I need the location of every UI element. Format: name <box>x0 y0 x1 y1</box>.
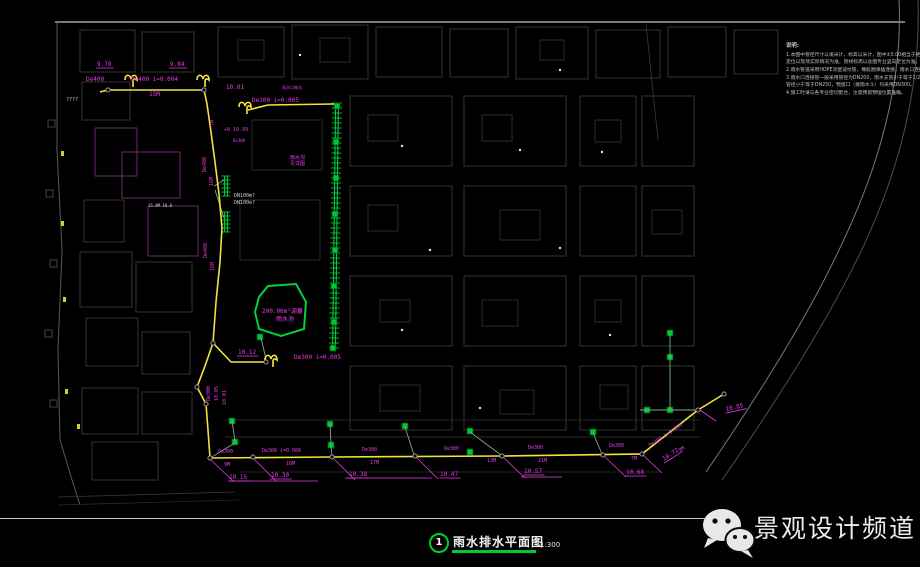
cad-label: 10.47 <box>439 471 461 478</box>
cad-label-text: De300 <box>444 446 459 452</box>
cad-label-layer: 9.789.84De400De400 i=0.00415M????10.01雨水… <box>66 61 747 481</box>
cad-label-text: 10.68 <box>626 469 644 476</box>
manhole-node <box>211 341 215 345</box>
cad-label: 16M <box>286 461 295 467</box>
manhole-node <box>195 385 199 389</box>
dimension-leader <box>416 457 438 479</box>
cad-label-text: 9M <box>224 462 230 468</box>
cad-label-text: 10.01 <box>222 390 228 405</box>
boundary-marker <box>50 260 57 267</box>
rain-inlet <box>330 345 336 351</box>
manhole-node-layer <box>106 88 726 460</box>
cad-label-text: 10.47 <box>440 471 458 478</box>
dimension-leader <box>604 456 626 477</box>
cad-label: De300 <box>218 449 233 455</box>
drawing-title: 雨水排水平面图 <box>453 533 544 550</box>
cad-label-text: 9.84 <box>170 61 185 68</box>
cad-label: ???? <box>66 97 78 103</box>
cad-label: 13M <box>487 458 496 464</box>
cad-label: De400 <box>202 157 208 172</box>
cad-label: De300 i=0.005 <box>252 97 299 104</box>
cad-label-text: ???? <box>66 97 78 103</box>
cad-label-text: De300 i=0.005 <box>252 97 299 104</box>
curb-mark <box>61 221 64 226</box>
cad-label: 雨水池 <box>276 315 294 323</box>
cad-label: 9.84 <box>169 61 187 68</box>
cad-label-text: 10.30 <box>271 472 289 479</box>
cad-label: De300 <box>233 138 246 143</box>
cad-label: 雨水口做法 <box>282 84 302 90</box>
boundary-marker <box>50 400 57 407</box>
cad-label-text: 13M <box>487 458 496 464</box>
cad-label: +8 19.99 <box>224 127 248 133</box>
cad-label: 16M <box>210 262 216 271</box>
dimension-leader <box>700 410 716 421</box>
rain-inlet <box>333 139 339 145</box>
cad-label-text: 15M <box>149 91 160 98</box>
storm-pipe <box>248 104 334 110</box>
cad-label-text: De400 i=0.004 <box>131 76 178 83</box>
cad-label: 7M <box>631 456 637 462</box>
road-line <box>58 492 235 497</box>
manhole-node <box>106 88 110 92</box>
storm-pipe <box>197 343 213 387</box>
road-line <box>58 500 240 505</box>
storm-pipe <box>204 90 222 343</box>
storm-pipe <box>210 454 642 458</box>
drawing-scale: 1:300 <box>540 541 560 549</box>
cad-label: 21M <box>538 458 547 464</box>
manhole-node <box>722 392 726 396</box>
notes-line: 管径小于等于DN250，预留口（接雨水斗）均采用DN300。 <box>786 82 914 90</box>
cad-label-text: 17M <box>370 460 379 466</box>
inlet-connector <box>470 432 501 455</box>
cad-label: De300 i=0.005 <box>648 422 684 448</box>
cad-label: 9M <box>224 462 230 468</box>
cad-label-text: De300 <box>528 445 543 451</box>
rain-drain-symbol <box>197 75 209 87</box>
rain-inlet <box>257 334 263 340</box>
wechat-icon <box>700 505 758 561</box>
cad-label-text: 雨水口做法 <box>282 84 302 90</box>
cad-label: 10.01 <box>222 390 228 405</box>
cad-label-text: 16M <box>209 177 215 186</box>
cad-label-text: 10.12 <box>238 349 256 356</box>
cad-label: 17M <box>370 460 379 466</box>
cad-label: 15.8M 18.0 <box>148 203 173 208</box>
dimension-leader <box>503 457 525 478</box>
cad-label-text: De300 <box>609 443 624 449</box>
rain-inlet <box>332 247 338 253</box>
cad-label: 10.01 <box>226 84 244 91</box>
cad-label-text: De400 <box>86 76 104 83</box>
inlet-connector <box>405 427 414 455</box>
rain-inlet <box>333 175 339 181</box>
cad-label: 10.30 <box>270 472 292 479</box>
cad-label: 9.78 <box>96 61 114 68</box>
cad-label-text: De300 <box>218 449 233 455</box>
manhole-node <box>204 402 208 406</box>
cad-label-text: 10.38 <box>349 471 367 478</box>
cad-label: 7M <box>210 120 216 126</box>
manhole-node <box>601 453 605 457</box>
cad-label-text: De400 <box>202 157 208 172</box>
cad-label-text: 16M <box>286 461 295 467</box>
notes-line: 1.本图中管径尺寸以毫米计，标高以米计，图中±0.00相当于绝对标高详见一览表，… <box>786 52 914 60</box>
cad-label: De300 <box>609 443 624 449</box>
cad-label-text: DN100e? <box>234 200 255 206</box>
cad-label: 10.68 <box>625 469 647 476</box>
notes-line: 2.雨水管道采用HDPE双壁波纹管，橡胶圈承插连接，雨水口连接管坡度不小于1%。 <box>786 67 914 75</box>
building-magenta <box>148 206 198 256</box>
cad-label: 10.38 <box>348 471 370 478</box>
manhole-node <box>330 455 334 459</box>
rain-inlet <box>467 449 473 455</box>
cad-label: De300 <box>206 386 212 401</box>
cad-label: 见详图 <box>290 160 305 167</box>
cad-label-text: +8 19.99 <box>224 127 248 133</box>
cad-label-text: De300 <box>233 138 246 143</box>
manhole-node <box>640 452 644 456</box>
notes-lines: 1.本图中管径尺寸以毫米计，标高以米计，图中±0.00相当于绝对标高详见一览表，… <box>786 52 914 98</box>
cad-label-text: 10.05 <box>214 386 220 401</box>
cad-label-text: De400 <box>203 243 209 258</box>
building-dots <box>299 54 611 409</box>
cad-label: 10.05 <box>214 386 220 401</box>
cad-label: 10.57 <box>523 468 545 475</box>
cad-label: De400 <box>86 76 104 83</box>
cad-label: 200.00m³调蓄 <box>262 307 303 315</box>
cad-label: De400 i=0.004 <box>131 76 178 83</box>
cad-label-text: 雨水池 <box>276 315 294 323</box>
cad-label-text: De300 i=0.006 <box>262 448 301 454</box>
manhole-node <box>696 408 700 412</box>
cad-label-text: 10.01 <box>226 84 244 91</box>
manhole-node <box>500 454 504 458</box>
boundary-marker <box>46 190 53 197</box>
cad-label: De300 i=0.006 <box>262 448 301 454</box>
boundary-marker <box>48 120 55 127</box>
manhole-node <box>413 454 417 458</box>
rain-inlet <box>332 211 338 217</box>
cad-label: De300 <box>444 446 459 452</box>
cad-label: De300 <box>362 447 377 453</box>
rain-inlet <box>331 283 337 289</box>
cad-label-text: De300 i=0.005 <box>294 354 341 361</box>
cad-label: 雨水沟 <box>290 154 305 161</box>
cad-label-text: De300 <box>362 447 377 453</box>
cad-label: De300 i=0.005 <box>294 354 341 361</box>
cad-label: 15M <box>149 91 160 98</box>
cad-label: De400 <box>203 243 209 258</box>
cad-label-text: 雨水沟 <box>290 154 305 161</box>
cad-label-text: De300 i=0.005 <box>648 422 684 448</box>
cad-label: 10.15 <box>228 474 250 481</box>
curb-mark <box>63 297 66 302</box>
dimension-leader <box>643 455 662 473</box>
cad-label: De300 <box>528 445 543 451</box>
cad-label: 10.85 <box>724 402 747 413</box>
cad-label: DN100e? <box>234 200 255 206</box>
curb-mark <box>77 424 80 429</box>
building-magenta <box>122 152 180 198</box>
manhole-node <box>251 455 255 459</box>
cad-label-text: 15.8M 18.0 <box>148 203 173 208</box>
curb-mark <box>65 389 68 394</box>
curb-mark <box>61 151 64 156</box>
cad-label-text: De300 <box>206 386 212 401</box>
cad-label: 16M <box>209 177 215 186</box>
cad-label-text: 10.57 <box>524 468 542 475</box>
cad-screenshot-root: 9.789.84De400De400 i=0.00415M????10.01雨水… <box>0 0 920 567</box>
notes-line: 3.雨水口连接管一般采用管径为DN200，雨水支管小于等于1/2， <box>786 75 914 83</box>
cad-label-text: 21M <box>538 458 547 464</box>
cad-label-text: 7M <box>210 120 216 126</box>
west-boundary-line <box>57 22 80 505</box>
cad-label-text: 16M <box>210 262 216 271</box>
inlet-connector <box>593 433 602 454</box>
manhole-node <box>202 88 206 92</box>
boundary-marker <box>45 330 52 337</box>
cad-label-text: 10.15 <box>229 474 247 481</box>
drawing-title-underline <box>452 550 536 553</box>
storm-pipe-layer <box>100 90 724 458</box>
notes-block: 说明: 1.本图中管径尺寸以毫米计，标高以米计，图中±0.00相当于绝对标高详见… <box>786 42 914 98</box>
manhole-node <box>264 360 268 364</box>
notes-line: 4.施工时请与各专业密切配合，注意预留预埋位置准确。 <box>786 90 914 98</box>
cad-label-text: 见详图 <box>290 160 305 167</box>
rain-drain-symbol <box>239 102 251 114</box>
cad-label-text: 200.00m³调蓄 <box>262 307 303 315</box>
rain-inlet <box>334 103 340 109</box>
notes-line: 定位以现场实际情况为准，管线标高以总图专业竖向定位为准。 <box>786 59 914 67</box>
cad-label: DN100m? <box>234 193 255 199</box>
rain-inlet <box>331 319 337 325</box>
manhole-node <box>208 456 212 460</box>
cad-label-text: DN100m? <box>234 193 255 199</box>
titleblock-divider <box>0 518 706 519</box>
cad-label-text: 7M <box>631 456 637 462</box>
cad-label-text: 9.78 <box>97 61 112 68</box>
notes-heading: 说明: <box>786 42 914 51</box>
inlet-connector <box>214 180 224 186</box>
figure-number-badge: 1 <box>429 533 449 553</box>
site-plan-canvas: 9.789.84De400De400 i=0.00415M????10.01雨水… <box>0 0 920 567</box>
cad-label: 10.12 <box>237 349 259 356</box>
watermark-brand: 景观设计频道 <box>754 509 916 545</box>
road-line <box>646 24 658 140</box>
